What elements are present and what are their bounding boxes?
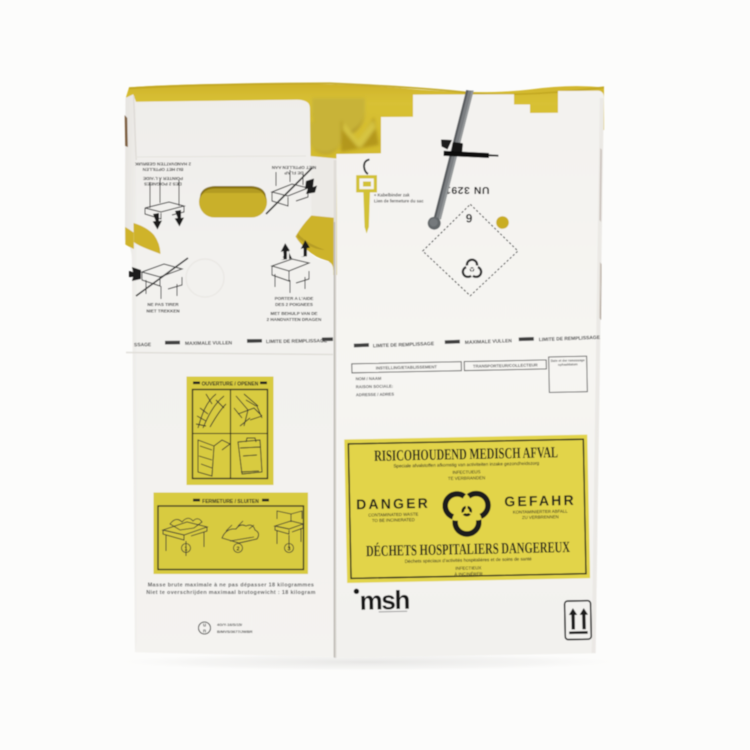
- svg-text:6: 6: [465, 211, 472, 225]
- svg-text:4G/Y-16/S/15/: 4G/Y-16/S/15/: [217, 622, 243, 627]
- svg-text:POINTER A L'AIDE: POINTER A L'AIDE: [143, 176, 183, 181]
- svg-text:TE VERBRANDEN: TE VERBRANDEN: [448, 475, 485, 481]
- svg-text:« Kabelbinder zak: « Kabelbinder zak: [374, 193, 410, 198]
- svg-text:2: 2: [236, 547, 239, 553]
- svg-text:Lien de fermeture du sac: Lien de fermeture du sac: [374, 199, 424, 204]
- svg-text:TO BE INCINERATED: TO BE INCINERATED: [372, 517, 415, 523]
- svg-text:DES 2 POIGNEES: DES 2 POIGNEES: [275, 302, 313, 307]
- svg-text:OUVERTURE / OPENEN: OUVERTURE / OPENEN: [202, 382, 259, 388]
- svg-text:3: 3: [287, 547, 290, 553]
- svg-text:Niet te overschrijden maximaal: Niet te overschrijden maximaal brutogewi…: [146, 590, 315, 596]
- svg-text:NIET OPTILLEN AAN: NIET OPTILLEN AAN: [272, 165, 317, 170]
- svg-text:2 HANDVATTEN DRAGEN: 2 HANDVATTEN DRAGEN: [267, 317, 322, 322]
- svg-text:NOM / NAAM: NOM / NAAM: [356, 376, 382, 382]
- svg-text:LIMITE DE REMPLISSAGE: LIMITE DE REMPLISSAGE: [266, 338, 328, 345]
- svg-text:INFECTUEUS: INFECTUEUS: [452, 469, 480, 475]
- svg-text:SSAGE: SSAGE: [134, 342, 152, 348]
- svg-text:MET BEHULP VAN DE: MET BEHULP VAN DE: [270, 311, 317, 316]
- svg-text:ophaaldatum: ophaaldatum: [558, 362, 578, 366]
- svg-text:MAXIMALE VULLEN: MAXIMALE VULLEN: [185, 340, 233, 347]
- svg-text:NE PAS TIRER: NE PAS TIRER: [147, 302, 179, 307]
- svg-text:B/MVS/3677/JWBR: B/MVS/3677/JWBR: [217, 629, 253, 634]
- svg-text:n: n: [203, 629, 206, 635]
- svg-text:DANGER: DANGER: [356, 495, 430, 512]
- svg-text:ZU VERBRENNEN: ZU VERBRENNEN: [522, 514, 559, 520]
- svg-text:NIET TREKKEN: NIET TREKKEN: [146, 309, 179, 314]
- svg-text:BIJ HET OPTILLEN: BIJ HET OPTILLEN: [143, 167, 184, 172]
- svg-text:1: 1: [184, 547, 187, 553]
- svg-text:Masse brute maximale à ne pas: Masse brute maximale à ne pas dépasser 1…: [148, 583, 315, 589]
- svg-text:UN 3291: UN 3291: [445, 184, 490, 196]
- svg-text:INFECTIEUX: INFECTIEUX: [455, 565, 481, 571]
- svg-text:ADRESSE / ADRES: ADRESSE / ADRES: [356, 392, 395, 398]
- svg-text:RAISON SOCIALE:: RAISON SOCIALE:: [356, 384, 394, 390]
- svg-text:FERMETURE / SLUITEN: FERMETURE / SLUITEN: [202, 499, 259, 505]
- svg-text:GEFAHR: GEFAHR: [504, 492, 576, 509]
- svg-text:DE FLAP: DE FLAP: [284, 171, 303, 176]
- svg-text:PORTER A L'AIDE: PORTER A L'AIDE: [275, 296, 314, 301]
- svg-text:2 HANDVATTEN GEBRUIK: 2 HANDVATTEN GEBRUIK: [134, 162, 191, 167]
- svg-text:À INCINÉRER: À INCINÉRER: [454, 571, 482, 577]
